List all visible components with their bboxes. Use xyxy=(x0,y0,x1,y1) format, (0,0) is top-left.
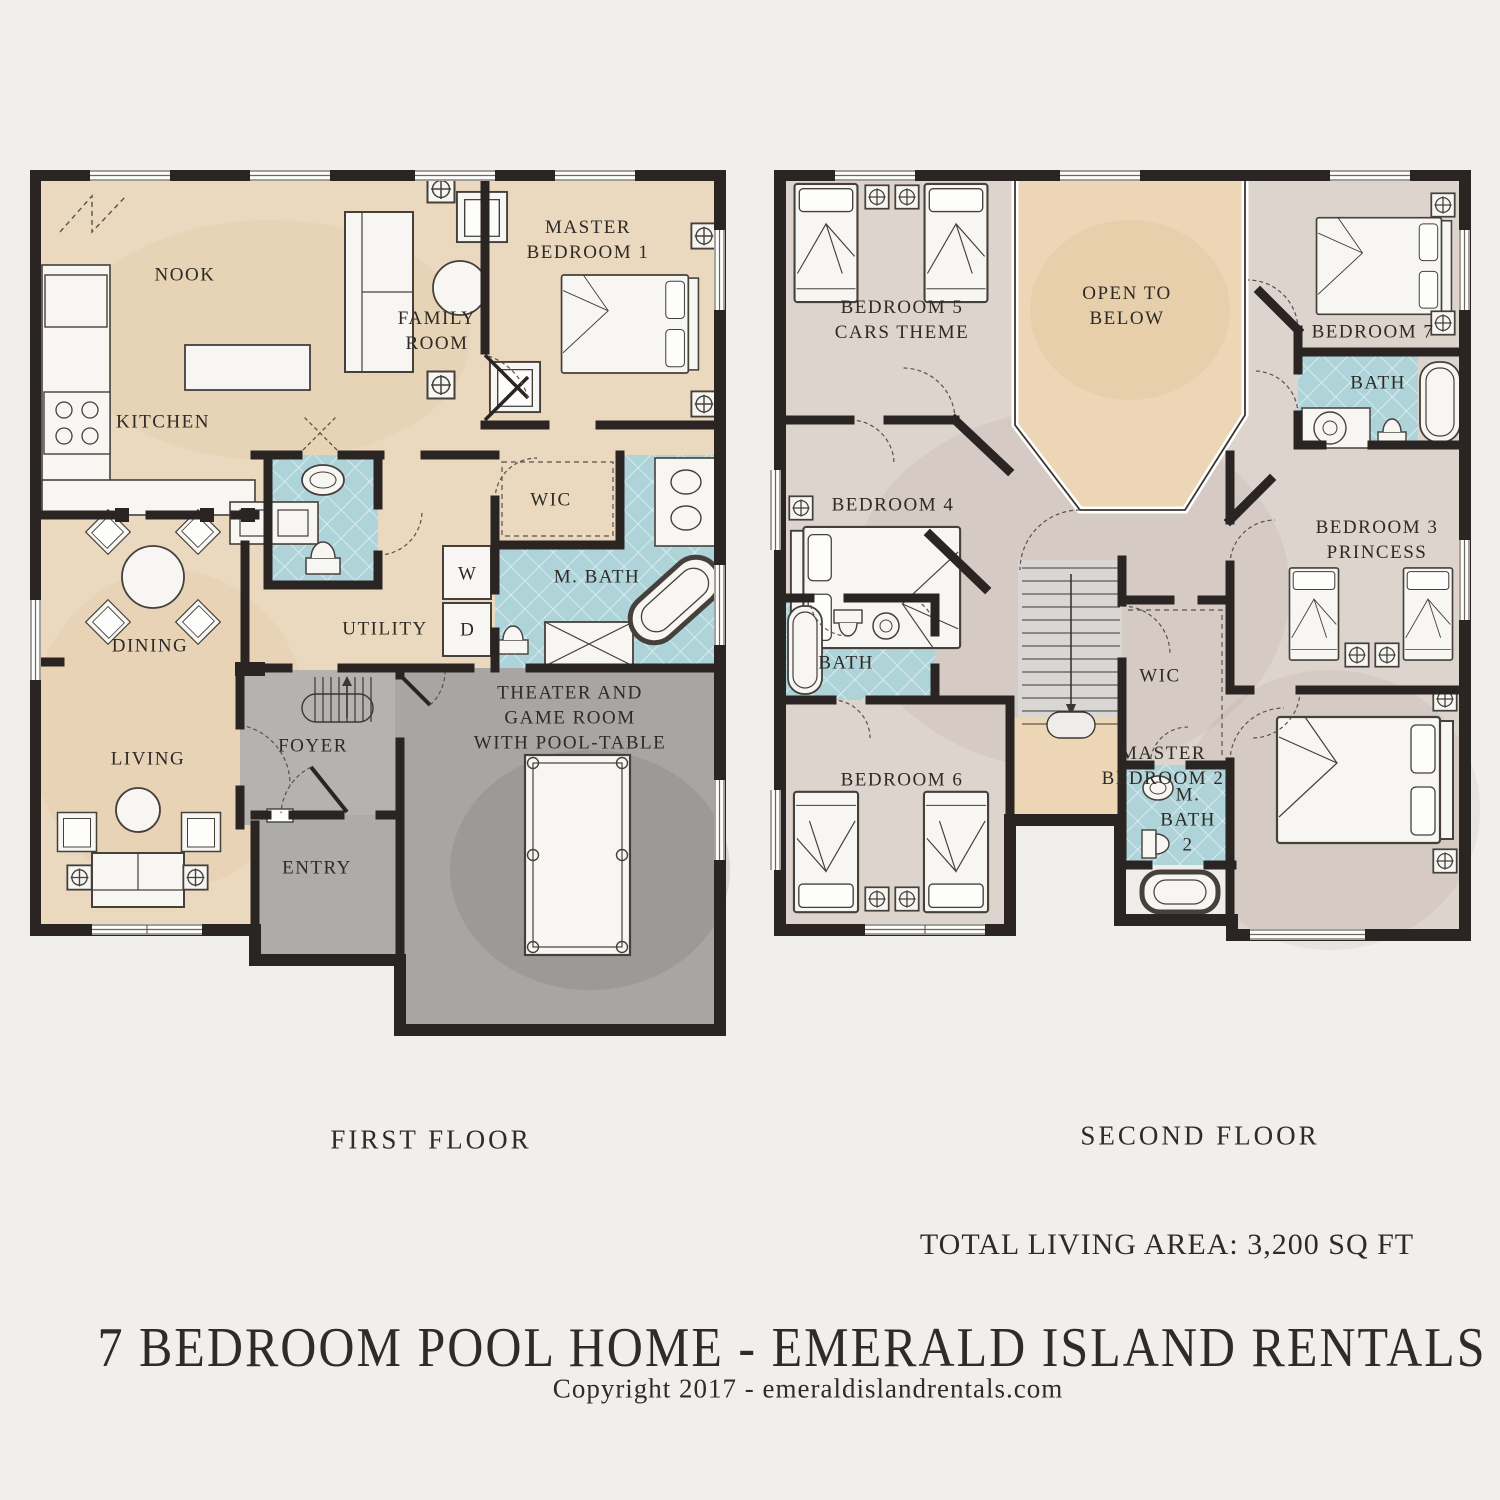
room-label-entry: ENTRY xyxy=(282,855,352,880)
room-label-m-bath: M. BATH xyxy=(554,564,641,589)
room-label-nook: NOOK xyxy=(155,262,216,287)
room-label-utility: UTILITY xyxy=(342,616,427,641)
page-title: 7 BEDROOM POOL HOME - EMERALD ISLAND REN… xyxy=(97,1315,1486,1380)
copyright-line: Copyright 2017 - emeraldislandrentals.co… xyxy=(553,1374,1063,1405)
total-living-area: TOTAL LIVING AREA: 3,200 SQ FT xyxy=(920,1228,1414,1262)
room-label-foyer: FOYER xyxy=(278,733,348,758)
room-label-bedroom-3: BEDROOM 3 PRINCESS xyxy=(1316,515,1439,565)
room-label-m-bath-2: M. BATH 2 xyxy=(1160,782,1216,857)
second-floor-caption: SECOND FLOOR xyxy=(1080,1121,1319,1152)
room-label-master-bedroom-1: MASTER BEDROOM 1 xyxy=(527,215,650,265)
room-label-bath-left: BATH xyxy=(818,650,874,675)
room-label-wic-1: WIC xyxy=(530,487,571,512)
dryer-label: D xyxy=(460,617,474,642)
pool-table xyxy=(525,755,630,955)
room-label-master-bedroom-2: MASTER BEDROOM 2 xyxy=(1102,741,1225,791)
room-label-bedroom-7: BEDROOM 7 xyxy=(1312,319,1435,344)
floor-plan-page: NOOK KITCHEN FAMILY ROOM MASTER BEDROOM … xyxy=(0,0,1500,1500)
room-label-kitchen: KITCHEN xyxy=(116,409,210,434)
first-floor-drawing xyxy=(30,170,730,1040)
room-label-bedroom-5: BEDROOM 5 CARS THEME xyxy=(835,295,969,345)
washer-label: W xyxy=(458,561,476,586)
room-label-open-to-below: OPEN TO BELOW xyxy=(1082,281,1172,331)
room-label-theater: THEATER AND GAME ROOM WITH POOL-TABLE xyxy=(474,680,666,755)
room-label-living: LIVING xyxy=(111,746,185,771)
first-floor-caption: FIRST FLOOR xyxy=(330,1125,531,1156)
room-label-bedroom-6: BEDROOM 6 xyxy=(841,767,964,792)
room-label-family-room: FAMILY ROOM xyxy=(398,306,477,356)
room-label-wic-2: WIC xyxy=(1139,663,1180,688)
room-label-dining: DINING xyxy=(112,633,189,658)
room-label-bedroom-4: BEDROOM 4 xyxy=(832,492,955,517)
room-label-bath-right: BATH xyxy=(1350,370,1406,395)
